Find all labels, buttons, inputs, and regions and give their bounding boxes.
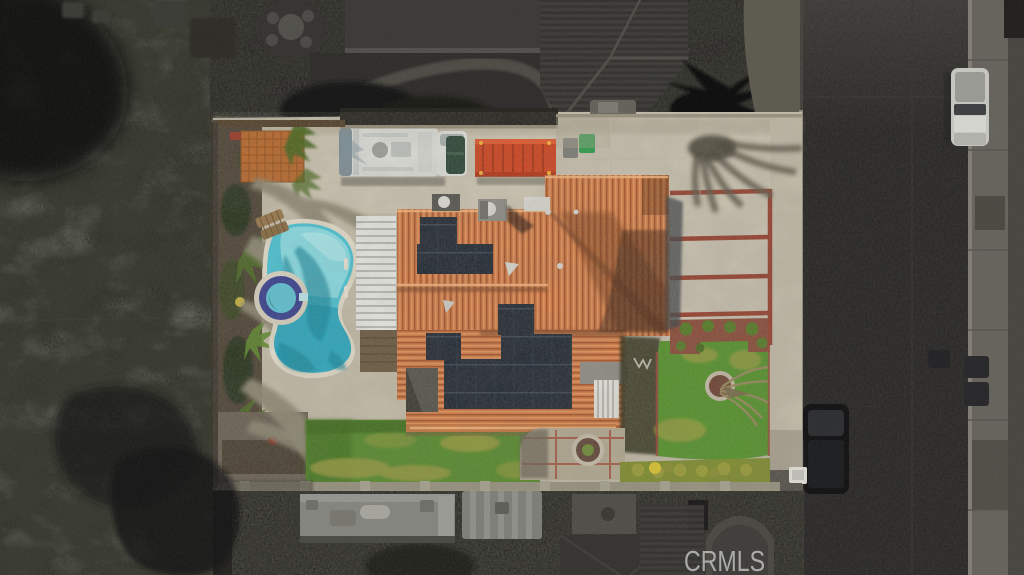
svg-text:CRMLS: CRMLS: [684, 546, 765, 575]
